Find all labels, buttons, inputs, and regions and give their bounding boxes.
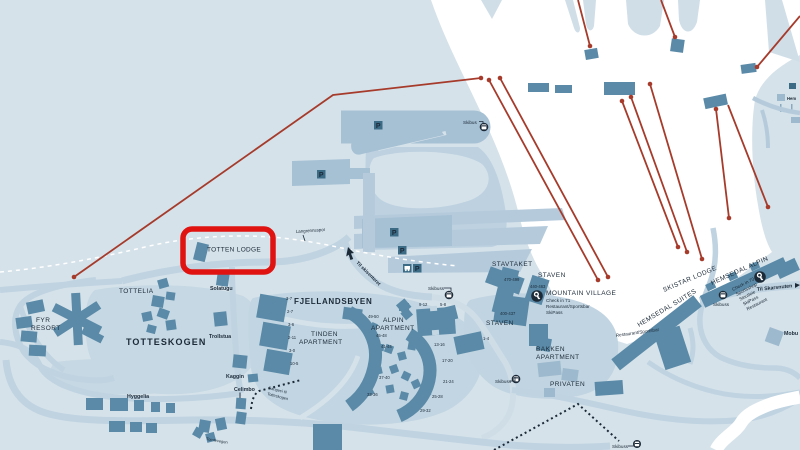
svg-text:RESORT: RESORT	[31, 325, 61, 332]
svg-text:2-11: 2-11	[288, 335, 297, 340]
svg-text:17-20: 17-20	[442, 358, 453, 363]
svg-text:1-4: 1-4	[483, 336, 490, 341]
svg-text:STAVTAKET: STAVTAKET	[492, 261, 533, 268]
svg-text:Check in 71: Check in 71	[546, 298, 571, 303]
svg-text:APARTMENT: APARTMENT	[299, 339, 343, 346]
svg-text:P: P	[392, 230, 397, 237]
svg-text:P: P	[415, 266, 420, 273]
svg-text:2-7: 2-7	[287, 309, 294, 314]
svg-text:3-7: 3-7	[286, 296, 293, 301]
svg-text:5-8: 5-8	[440, 302, 447, 307]
svg-text:Trollstua: Trollstua	[209, 334, 231, 340]
svg-text:Skibuss: Skibuss	[612, 444, 629, 449]
svg-text:45-48: 45-48	[376, 333, 387, 338]
svg-text:25-28: 25-28	[432, 394, 443, 399]
svg-text:33-36: 33-36	[367, 392, 378, 397]
svg-text:470-499: 470-499	[504, 277, 520, 282]
svg-text:TOTTELIA: TOTTELIA	[119, 288, 154, 295]
svg-text:400-437: 400-437	[500, 311, 516, 316]
svg-text:Mobu: Mobu	[784, 331, 798, 337]
svg-text:Restaurant/Sportsbar: Restaurant/Sportsbar	[546, 304, 590, 309]
svg-text:41-44: 41-44	[381, 344, 392, 349]
svg-text:TINDEN: TINDEN	[311, 331, 338, 338]
svg-text:Celimbo: Celimbo	[234, 387, 256, 393]
svg-text:FJELLANDSBYEN: FJELLANDSBYEN	[294, 297, 372, 306]
svg-text:P: P	[376, 123, 381, 130]
svg-text:P: P	[319, 172, 324, 179]
svg-text:Hyggelia: Hyggelia	[127, 394, 149, 400]
svg-text:3-6: 3-6	[288, 322, 295, 327]
svg-text:49-50: 49-50	[368, 314, 379, 319]
svg-text:Skibus: Skibus	[463, 120, 477, 125]
svg-text:PRIVATEN: PRIVATEN	[550, 381, 585, 388]
svg-text:Skibuss: Skibuss	[495, 379, 512, 384]
svg-text:Hem: Hem	[787, 96, 796, 101]
svg-text:Skibuss: Skibuss	[713, 302, 730, 307]
svg-text:Kaggin: Kaggin	[226, 374, 244, 380]
svg-text:APARTMENT: APARTMENT	[371, 325, 415, 332]
svg-text:STAVEN: STAVEN	[486, 320, 514, 327]
svg-text:Skibuss: Skibuss	[428, 286, 445, 291]
svg-text:Solatugu: Solatugu	[210, 286, 233, 292]
svg-text:9-12: 9-12	[419, 302, 428, 307]
svg-text:TOTTEN LODGE: TOTTEN LODGE	[207, 247, 261, 254]
svg-text:10-5: 10-5	[290, 361, 299, 366]
svg-text:3-0: 3-0	[289, 348, 296, 353]
svg-text:37-40: 37-40	[379, 375, 390, 380]
svg-text:APARTMENT: APARTMENT	[536, 354, 580, 361]
svg-text:13-16: 13-16	[434, 342, 445, 347]
svg-text:SkiPass: SkiPass	[546, 310, 563, 315]
svg-text:FYR: FYR	[36, 317, 50, 324]
svg-text:ALPIN: ALPIN	[383, 317, 404, 324]
svg-text:STAVEN: STAVEN	[538, 272, 566, 279]
svg-text:TOTTESKOGEN: TOTTESKOGEN	[126, 337, 206, 347]
svg-text:29-32: 29-32	[420, 408, 431, 413]
svg-text:BAKKEN: BAKKEN	[536, 346, 565, 353]
svg-text:21-24: 21-24	[443, 379, 454, 384]
svg-text:P: P	[400, 248, 405, 255]
svg-text:440-463: 440-463	[530, 284, 546, 289]
svg-text:MOUNTAIN VILLAGE: MOUNTAIN VILLAGE	[546, 290, 617, 297]
